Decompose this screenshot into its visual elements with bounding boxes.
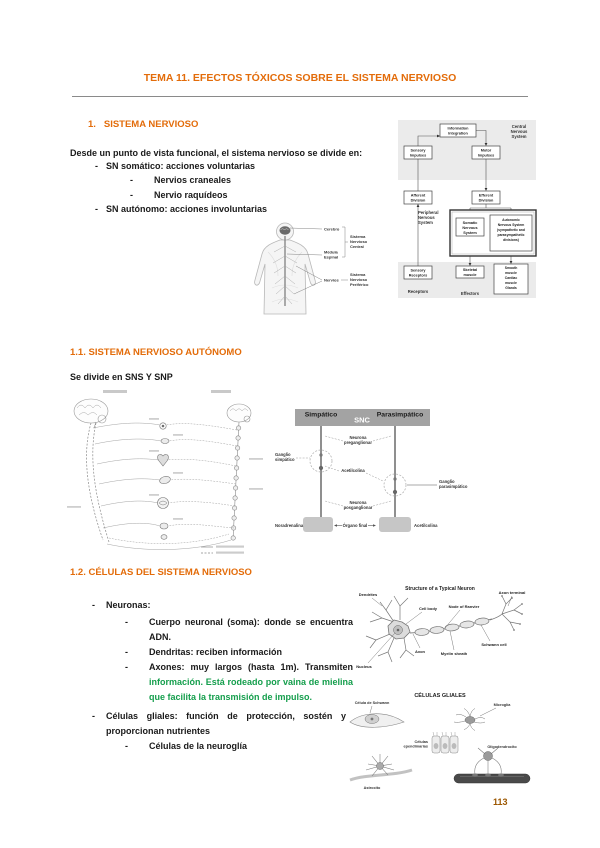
bullet-item: - SN autónomo: acciones involuntarias [95, 202, 267, 217]
oligodendrocyte-label: Oligodendrocito [487, 745, 517, 749]
svg-text:Impulses: Impulses [410, 154, 426, 158]
svg-text:Receptors: Receptors [409, 274, 428, 278]
snc-label: SNC [354, 416, 370, 425]
astrocyte-drawing [350, 754, 412, 780]
acetylcholine-bottom-label: Acetilcolina [414, 523, 438, 528]
svg-text:Integration: Integration [448, 132, 468, 136]
acetylcholine-mid-label: Acetilcolina [341, 468, 365, 473]
svg-text:Nervous: Nervous [462, 226, 477, 230]
glial-figure-title: CÉLULAS GLIALES [414, 691, 466, 699]
bullet-dash: - [92, 709, 95, 724]
svg-text:(sympathetic and: (sympathetic and [497, 228, 525, 232]
ans-labels: Neurona preganglionar Ganglio simpático … [275, 435, 468, 510]
page-number: 113 [493, 797, 508, 807]
info-integration-label: Information [448, 127, 470, 131]
effectors-label: Effectors [461, 291, 480, 296]
motor-impulses-label: Motor [481, 149, 492, 153]
microglia-label: Microglía [494, 703, 512, 707]
bullet-item: - Células de la neuroglía [125, 739, 247, 754]
svg-text:preganglionar: preganglionar [344, 440, 372, 445]
svg-text:Division: Division [411, 199, 426, 203]
schwann-cell-drawing [350, 706, 404, 727]
axon-text-green: información. Está rodeado por vaina de m… [149, 677, 353, 702]
myelin-sheaths [415, 617, 489, 635]
ependymal-cells-drawing [432, 732, 458, 753]
svg-text:Central: Central [350, 244, 364, 249]
cell-body-label: Cell body [419, 606, 438, 611]
ganglia [310, 450, 406, 525]
bullet-dash: - [125, 615, 128, 630]
bullet-item: - Neuronas: [92, 598, 151, 613]
ans-anatomy-figure [63, 388, 267, 560]
autonomic-label: Autonomic [502, 218, 520, 222]
svg-text:ependimarias: ependimarias [404, 745, 428, 749]
glial-figure: CÉLULAS GLIALES [342, 688, 538, 794]
bullet-item: - Nervio raquídeos [130, 188, 228, 203]
organs [158, 423, 172, 540]
bullet-dash: - [125, 645, 128, 660]
svg-text:Nervous System: Nervous System [498, 223, 525, 227]
caption-marks [103, 390, 231, 393]
target-organ-label: Órgano final [343, 523, 368, 528]
axon-label: Axon [415, 649, 426, 654]
ependymal-label: Células [414, 740, 428, 744]
sensory-impulses-label: Sensory [411, 149, 427, 153]
svg-text:System: System [418, 220, 433, 225]
smooth-muscle-label: Smooth [505, 266, 518, 270]
oligodendrocyte-drawing [454, 748, 530, 783]
document-page: TEMA 11. EFECTOS TÓXICOS SOBRE EL SISTEM… [0, 0, 600, 848]
nucleus-label: Nucleus [356, 664, 372, 669]
myelin-sheath-label: Myelin sheath [441, 651, 468, 656]
svg-text:parasimpático: parasimpático [439, 484, 468, 489]
svg-text:System: System [463, 231, 477, 235]
schwann-cell-label: Schwann cell [481, 642, 506, 647]
svg-text:muscle: muscle [463, 273, 476, 277]
bullet-item: - Axones: muy largos (hasta 1m). Transmi… [125, 660, 353, 705]
svg-text:Cardiac: Cardiac [505, 276, 518, 280]
soma [388, 620, 410, 639]
section-1-1-intro: Se divide en SNS Y SNP [70, 370, 173, 385]
bullet-item: - Dendritas: reciben información [125, 645, 282, 660]
title-divider [72, 96, 528, 97]
svg-text:Impulses: Impulses [478, 154, 494, 158]
page-title: TEMA 11. EFECTOS TÓXICOS SOBRE EL SISTEM… [0, 72, 600, 84]
section-1-2-heading: 1.2. CÉLULAS DEL SISTEMA NERVIOSO [70, 567, 252, 578]
svg-text:Periférico: Periférico [350, 282, 369, 287]
bullet-text: Nervios craneales [154, 173, 231, 188]
simpatico-label: Simpático [305, 412, 337, 419]
bullet-text: Cuerpo neuronal (soma): donde se encuent… [149, 615, 353, 645]
neuron-figure-title: Structure of a Typical Neuron [405, 586, 475, 592]
svg-text:divisions): divisions) [503, 238, 519, 242]
svg-text:muscle: muscle [505, 271, 517, 275]
neuron-figure: Structure of a Typical Neuron [342, 582, 538, 682]
bullet-dash: - [125, 660, 128, 675]
nervios-label: Nervios [324, 278, 339, 283]
axon-terminal-branches [490, 596, 522, 630]
svg-text:parasympathetic: parasympathetic [498, 233, 525, 237]
bullet-text: SN autónomo: acciones involuntarias [106, 202, 267, 217]
bullet-dash: - [130, 188, 133, 203]
section-1-1-heading: 1.1. SISTEMA NERVIOSO AUTÓNOMO [70, 347, 242, 358]
right-brain [227, 404, 251, 422]
parasimpatico-label: Parasimpático [377, 412, 423, 419]
bullet-text: Dendritas: reciben información [149, 645, 282, 660]
section-1-number: 1. [88, 119, 96, 130]
bullet-item: - Cuerpo neuronal (soma): donde se encue… [125, 615, 353, 645]
afferent-label: Afferent [411, 194, 426, 198]
bullet-dash: - [125, 739, 128, 754]
efferent-label: Efferent [479, 194, 494, 198]
bullet-dash: - [130, 173, 133, 188]
bullet-text: Neuronas: [106, 598, 151, 613]
svg-text:posganglionar: posganglionar [344, 505, 373, 510]
svg-text:System: System [512, 134, 527, 139]
bullet-item: - Células gliales: función de protección… [92, 709, 346, 739]
cerebro-label: Cerebro [324, 227, 340, 232]
section-1-heading: 1. SISTEMA NERVIOSO [88, 119, 198, 130]
body-figure-labels: Cerebro Médula Espinal Nervios Sistema N… [324, 227, 369, 288]
section-1-title: SISTEMA NERVIOSO [104, 119, 199, 130]
svg-text:simpático: simpático [275, 457, 295, 462]
skeletal-muscle-label: Skeletal [463, 268, 477, 272]
axon-text-black: Axones: muy largos (hasta 1m). Transmite… [149, 662, 353, 672]
sensory-receptors-label: Sensory [411, 269, 427, 273]
svg-text:Division: Division [479, 199, 494, 203]
receptors-label: Receptors [408, 289, 429, 294]
astrocyte-label: Astrocito [364, 786, 381, 790]
bullet-text: Axones: muy largos (hasta 1m). Transmite… [149, 660, 353, 705]
bullet-text: Nervio raquídeos [154, 188, 228, 203]
axon-terminal-label: Axon terminal [499, 590, 526, 595]
svg-text:muscle: muscle [505, 281, 517, 285]
bullet-item: - SN somático: acciones voluntarias [95, 159, 255, 174]
target-organ-right-box [379, 517, 411, 532]
bullet-item: - Nervios craneales [130, 173, 231, 188]
ans-schematic-figure: Simpático SNC Parasimpático Neurona preg… [273, 405, 473, 543]
cns-flowchart-figure: Information Integration Sensory Impulses… [392, 116, 542, 302]
bullet-text: Células gliales: función de protección, … [106, 709, 346, 739]
svg-text:Espinal: Espinal [324, 255, 338, 260]
schwann-label: Célula de Schwann [355, 701, 390, 705]
target-organ-left-box [303, 517, 333, 532]
bullet-text: Células de la neuroglía [149, 739, 247, 754]
target-organ-row: Noradrenalina Órgano final Acetilcolina [275, 517, 438, 532]
bullet-dash: - [95, 159, 98, 174]
bullet-dash: - [92, 598, 95, 613]
vertebral-chain [231, 422, 241, 540]
figure-legend [201, 546, 244, 554]
dendrites-label: Dendrites [359, 592, 378, 597]
somatic-label: Somatic [463, 221, 478, 225]
microglia-drawing [454, 708, 496, 731]
svg-text:Glands: Glands [505, 286, 517, 290]
node-of-ranvier-label: Node of Ranvier [449, 604, 480, 609]
noradrenaline-label: Noradrenalina [275, 523, 304, 528]
body-nervous-figure: Cerebro Médula Espinal Nervios Sistema N… [238, 218, 390, 323]
bullet-text: SN somático: acciones voluntarias [106, 159, 255, 174]
bullet-dash: - [95, 202, 98, 217]
